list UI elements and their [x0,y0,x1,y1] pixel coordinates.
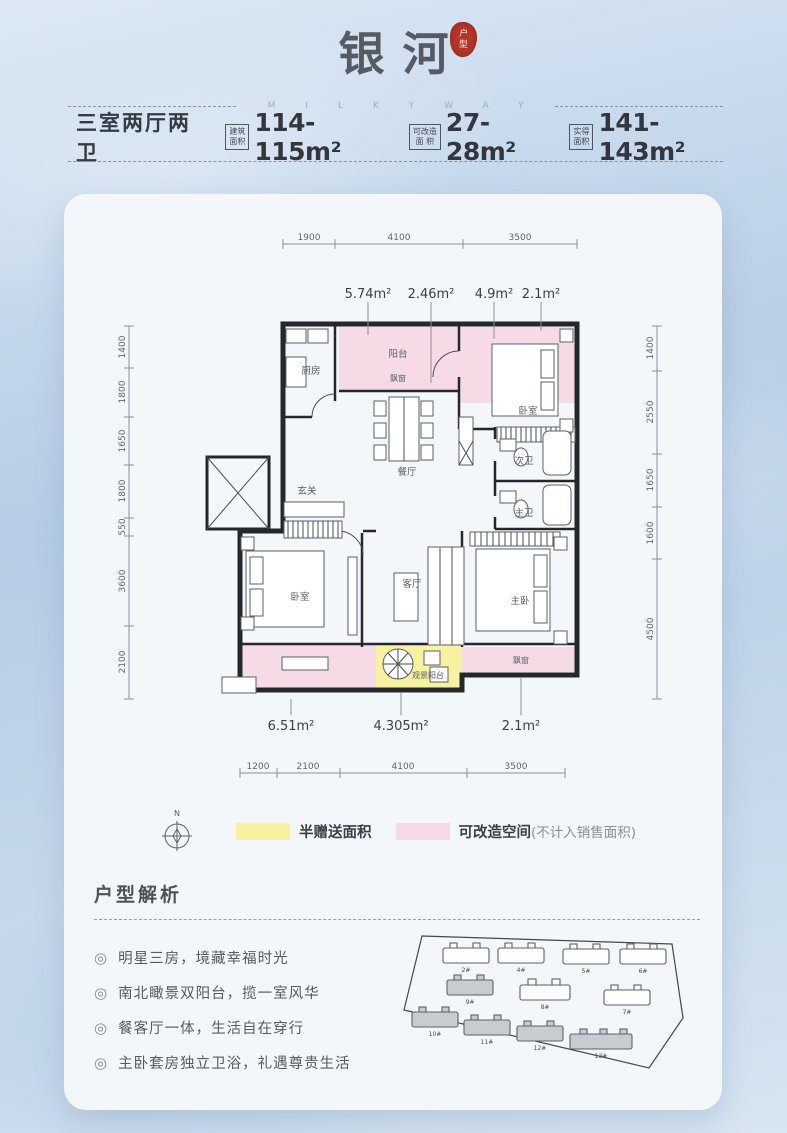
area-label: 5.74m² [345,287,392,302]
legend-row: N 半赠送面积 可改造空间(不计入销售面积) [160,806,636,856]
building-label: 6# [639,968,648,975]
room-label-master-bedroom: 主卧 [510,595,530,607]
legend-note-convertible: (不计入销售面积) [531,821,636,841]
dashed-divider-bottom [68,161,723,162]
spec-label-box: 建筑 面积 [225,124,249,150]
bullet-text: 南北瞰景双阳台，揽一室风华 [118,982,320,1003]
building-label: 10# [429,1031,442,1038]
dim-label: 1800 [118,380,128,403]
spec-row: 三室两厅两卫 建筑 面积 114-115m² 可改造 面 积 27-28m² 实… [76,117,727,157]
room-label-kitchen: 厨房 [301,365,320,377]
brand-title: 银河 [321,18,467,84]
building: 8# [520,979,570,1011]
floorplan-card: 厨房 阳台 飘窗 卧室 次卫 主卫 餐厅 玄关 客厅 卧室 主卧 观景阳台 飘窗… [64,194,722,1110]
dim-label: 1600 [646,521,656,544]
building: 2# [443,943,489,974]
legend-swatch-bonus [236,823,290,840]
building-label: 9# [466,999,475,1006]
area-label: 2.1m² [502,719,541,734]
building: 5# [563,944,609,975]
spec-value: 141-143m² [598,108,727,166]
bullet-icon: ◎ [94,984,107,1002]
dim-label: 1800 [118,479,128,502]
spec-item-actual-area: 实得 面积 141-143m² [569,108,727,166]
legend-label-bonus: 半赠送面积 [299,821,372,842]
building-label: 13# [595,1053,608,1060]
floorplan-drawing: 厨房 阳台 飘窗 卧室 次卫 主卫 餐厅 玄关 客厅 卧室 主卧 观景阳台 飘窗… [64,210,722,798]
spec-label-bottom: 面 积 [416,137,435,146]
room-label-view-balcony: 观景阳台 [412,670,444,680]
dim-label: 1400 [646,336,656,359]
building-label: 5# [582,968,591,975]
legend-label-convertible: 可改造空间 [459,821,532,842]
area-label: 4.9m² [475,287,514,302]
spec-label-box: 实得 面积 [569,124,593,150]
analysis-title: 户型解析 [94,880,700,907]
dim-label: 3600 [118,569,128,592]
building: 6# [620,944,666,975]
building-label: 11# [481,1039,494,1046]
spec-item-built-area: 建筑 面积 114-115m² [225,108,383,166]
bullet-text: 主卧套房独立卫浴，礼遇尊贵生活 [118,1052,351,1073]
seal-text-line1: 户 [458,28,467,39]
dim-label: 3500 [505,762,528,772]
dimension-lines: 1900 4100 3500 1200 2100 4100 3500 1400 … [118,233,662,778]
dim-label: 1650 [118,429,128,452]
room-label-north-baywindow: 飘窗 [390,373,406,383]
building-label: 12# [534,1045,547,1052]
spec-value: 114-115m² [254,108,383,166]
room-label-dining: 餐厅 [397,466,417,478]
area-label: 2.1m² [522,287,561,302]
room-label-living: 客厅 [402,578,422,590]
bullet-icon: ◎ [94,949,107,967]
room-label-west-bedroom: 卧室 [290,591,309,603]
legend-swatch-convertible [396,823,450,840]
spec-label-top: 可改造 [413,127,437,136]
brand-seal-stamp: 户 型 [449,22,477,58]
area-label: 4.305m² [373,719,428,734]
spec-item-convertible-area: 可改造 面 积 27-28m² [409,108,544,166]
building: 11# [464,1015,510,1046]
bullet-icon: ◎ [94,1019,107,1037]
dim-label: 1650 [646,468,656,491]
compass-north-icon: N [160,806,194,856]
dim-label: 1400 [118,335,128,358]
area-label: 2.46m² [408,287,455,302]
area-label: 6.51m² [268,719,315,734]
analysis-dashed-divider [94,919,700,920]
dim-label: 4100 [392,762,415,772]
spec-label-bottom: 面积 [573,137,589,146]
dim-label: 2100 [297,762,320,772]
room-label-north-bedroom: 卧室 [518,405,537,417]
building: 4# [498,943,544,974]
bullet-icon: ◎ [94,1054,107,1072]
building-label: 2# [462,967,471,974]
building: 13# [570,1029,632,1060]
layout-type-title: 三室两厅两卫 [76,107,199,167]
spec-label-bottom: 面积 [229,137,245,146]
dim-label: 2550 [646,400,656,423]
bullet-text: 餐客厅一体，生活自在穿行 [118,1017,304,1038]
poster-page: 银河 户 型 MILKYWAY 三室两厅两卫 建筑 面积 114-115m² 可… [0,0,787,1133]
dim-label: 550 [118,518,128,535]
dim-label: 3500 [509,233,532,243]
building: 9# [447,975,493,1006]
dim-label: 4100 [388,233,411,243]
building-label: 4# [517,967,526,974]
spec-label-top: 建筑 [229,127,245,136]
dim-label: 1900 [298,233,321,243]
spec-value: 27-28m² [446,108,544,166]
brand-header: 银河 户 型 [0,18,787,84]
dashed-divider-right [555,106,723,107]
bullet-text: 明星三房，境藏幸福时光 [118,947,289,968]
building: 7# [604,985,650,1016]
room-label-foyer: 玄关 [297,485,317,497]
spec-label-box: 可改造 面 积 [409,124,441,150]
room-label-south-baywindow: 飘窗 [513,655,529,665]
building-label: 8# [541,1004,550,1011]
room-label-master-bath: 主卫 [514,507,534,519]
building: 12# [517,1021,563,1052]
dim-label: 4500 [646,617,656,640]
building-label: 7# [623,1009,632,1016]
spec-label-top: 实得 [573,127,589,136]
room-label-second-bath: 次卫 [514,455,534,467]
siteplan-map: 2# 4# 5# 6# [400,922,692,1090]
seal-text-line2: 型 [458,39,467,50]
compass-north-label: N [174,809,180,818]
room-label-north-balcony: 阳台 [388,348,407,360]
dim-label: 1200 [247,762,270,772]
building: 10# [412,1007,458,1038]
dim-label: 2100 [118,650,128,673]
